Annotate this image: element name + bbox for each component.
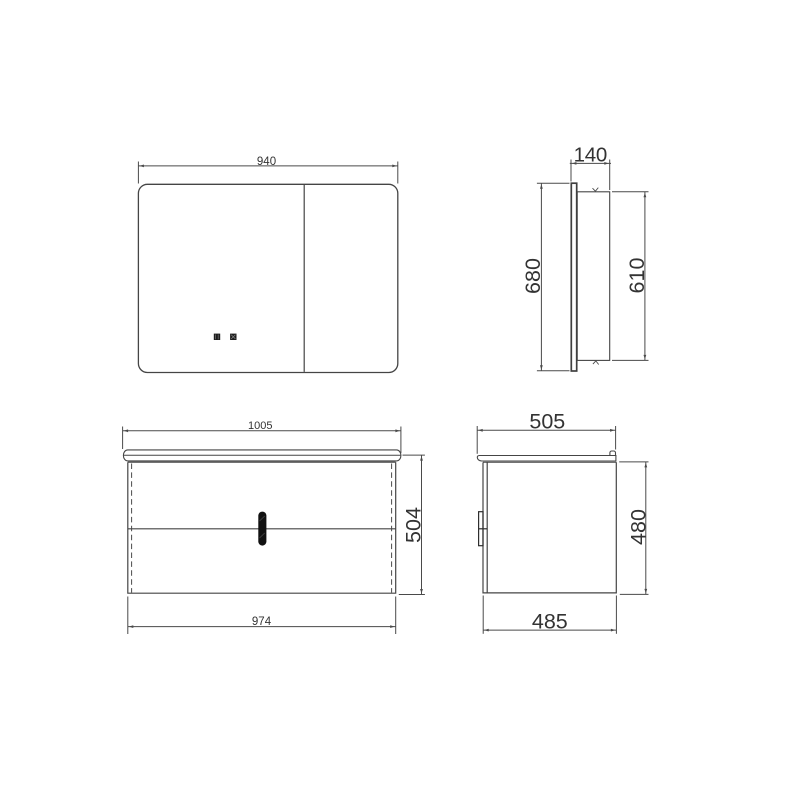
svg-text:940: 940: [257, 156, 276, 168]
svg-text:485: 485: [532, 609, 568, 633]
svg-text:680: 680: [521, 258, 545, 294]
svg-text:1005: 1005: [248, 420, 272, 432]
svg-text:504: 504: [401, 507, 425, 543]
svg-text:505: 505: [529, 410, 565, 434]
svg-text:974: 974: [252, 616, 272, 628]
svg-text:140: 140: [574, 144, 607, 167]
svg-text:480: 480: [626, 509, 650, 545]
svg-text:610: 610: [625, 258, 649, 294]
